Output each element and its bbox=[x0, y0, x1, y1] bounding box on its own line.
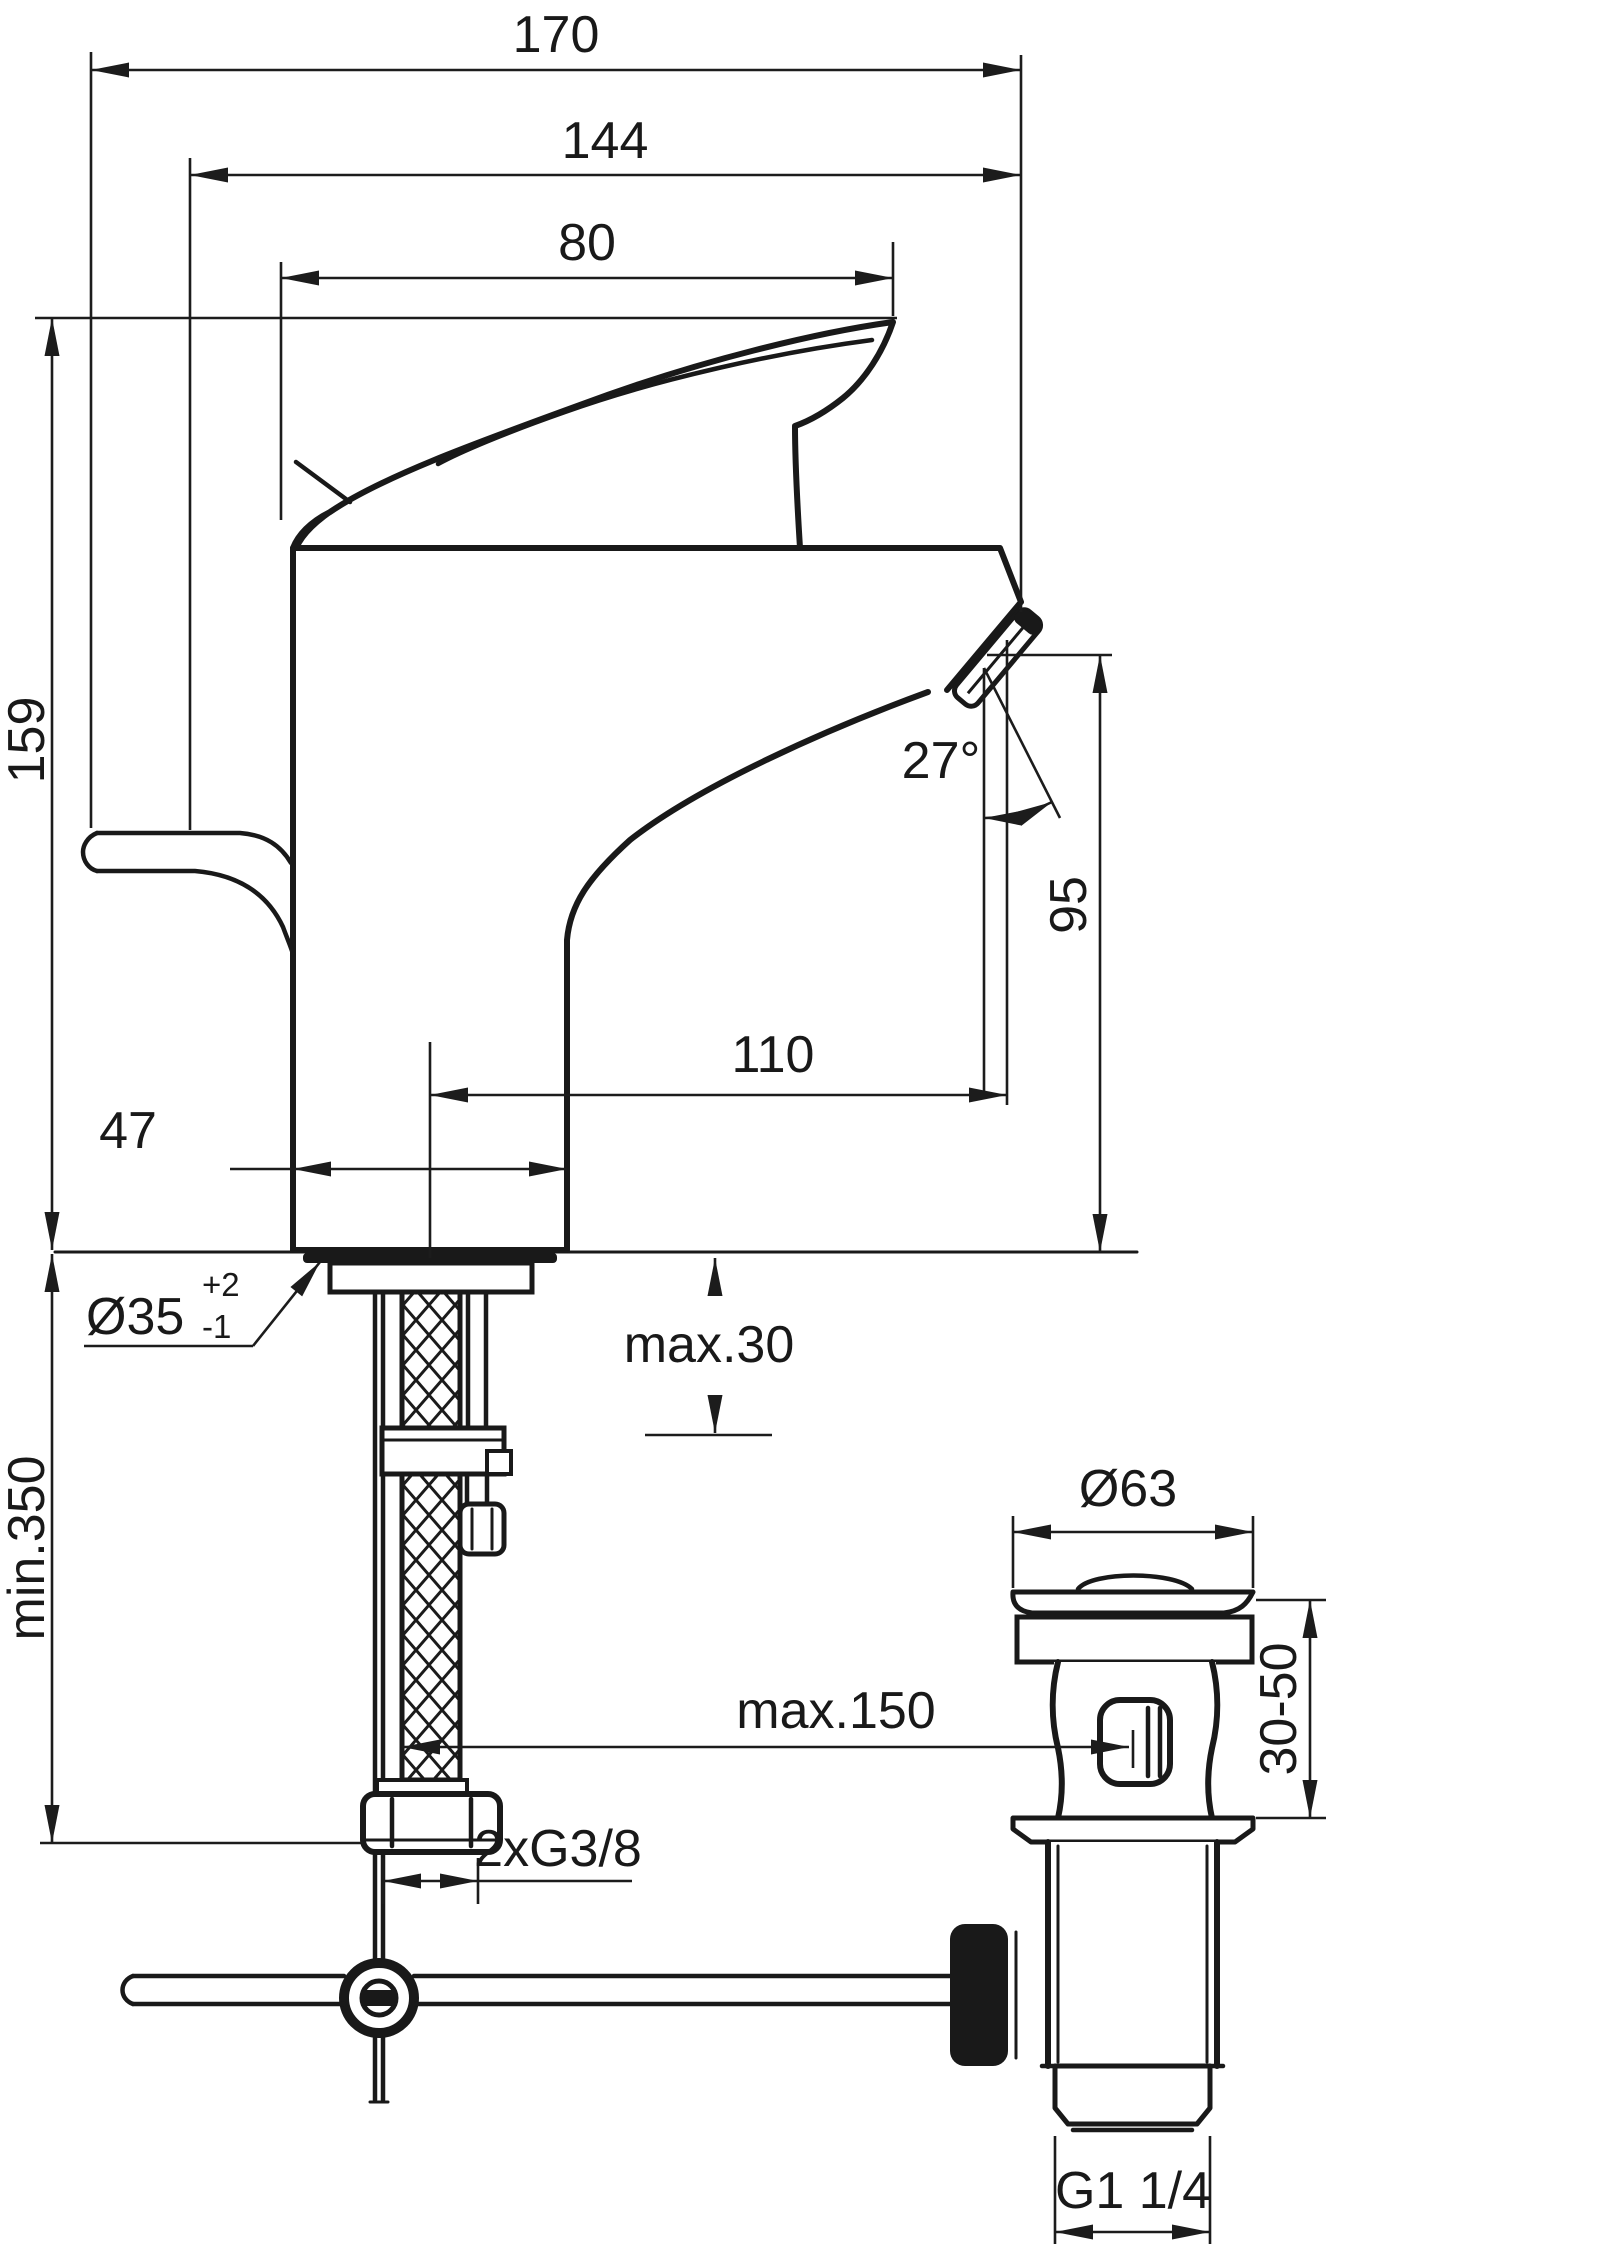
dim-dia63-label: Ø63 bbox=[1079, 1460, 1177, 1518]
mounting-shank bbox=[330, 1263, 532, 1292]
waste-upper-block bbox=[1017, 1617, 1252, 1662]
dim-max150-label: max.150 bbox=[736, 1682, 935, 1740]
faucet-body-fill bbox=[293, 548, 1021, 1250]
dim-110-label: 110 bbox=[732, 1026, 815, 1084]
braided-hose bbox=[402, 1292, 460, 1780]
waste-thread bbox=[1055, 2066, 1210, 2124]
rod-coupling-nut bbox=[950, 1924, 1008, 2066]
waste-tube-fill bbox=[1048, 1842, 1217, 2066]
horizontal-rod bbox=[123, 1976, 951, 2004]
handle-lever bbox=[293, 322, 893, 548]
dim-144-label: 144 bbox=[562, 112, 649, 170]
faucet-body-group bbox=[55, 322, 1137, 1292]
dim-g38-label: 2xG3/8 bbox=[474, 1820, 642, 1878]
dim-min350-label: min.350 bbox=[0, 1456, 56, 1641]
rod-pivot-bar bbox=[361, 1990, 397, 2006]
pullrod-knob bbox=[83, 833, 293, 954]
faucet-dimension-diagram: 170 144 80 159 min.350 27° 95 110 47 max… bbox=[0, 0, 1600, 2246]
dim-27deg-label: 27° bbox=[902, 732, 981, 790]
dim-47-label: 47 bbox=[99, 1102, 157, 1160]
clamp-step bbox=[487, 1451, 511, 1474]
technical-drawing-page: 170 144 80 159 min.350 27° 95 110 47 max… bbox=[0, 0, 1600, 2246]
angle-slant-line bbox=[984, 668, 1060, 818]
angle-arc bbox=[984, 802, 1052, 818]
dim-max30-label: max.30 bbox=[624, 1316, 795, 1374]
dim-dia35-tol-plus: +2 bbox=[202, 1266, 240, 1303]
dim-95-label: 95 bbox=[1040, 876, 1098, 934]
dim-3050-label: 30-50 bbox=[1250, 1643, 1308, 1776]
handle-dome-seam bbox=[296, 462, 350, 502]
waste-assembly-group bbox=[950, 1576, 1253, 2131]
dim-170-label: 170 bbox=[513, 6, 600, 64]
dim-80-label: 80 bbox=[558, 214, 616, 272]
waste-flange bbox=[1013, 1592, 1253, 1613]
hole-leader-arrow bbox=[253, 1262, 320, 1346]
dim-159-label: 159 bbox=[0, 697, 56, 784]
waste-plug-dome bbox=[1078, 1576, 1192, 1590]
dim-g114-label: G1 1/4 bbox=[1055, 2162, 1211, 2220]
waste-lower-flange bbox=[1013, 1818, 1253, 1842]
fixing-nut bbox=[460, 1504, 504, 1554]
dim-dia35-tol-minus: -1 bbox=[202, 1308, 231, 1345]
dim-dia35-label: Ø35 bbox=[86, 1288, 184, 1346]
